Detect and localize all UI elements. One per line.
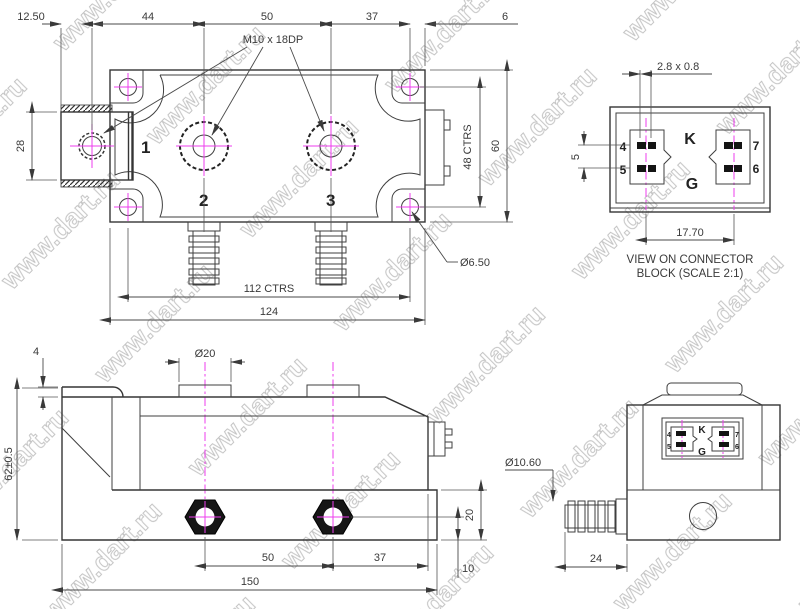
technical-drawing: www.dart.ru <box>0 0 800 609</box>
dim-pitch: 5 <box>570 154 582 160</box>
dim-48-ctrs: 48 CTRS <box>462 124 474 169</box>
pin-6-small: 6 <box>735 444 739 451</box>
cathode-label-small: K <box>698 425 706 436</box>
dim-dia-650: Ø6.50 <box>460 257 490 269</box>
dim-50-side: 50 <box>262 552 274 564</box>
dim-37-side: 37 <box>374 552 386 564</box>
watermark-layer <box>0 0 800 609</box>
dim-44: 44 <box>142 11 154 23</box>
dim-12-50: 12.50 <box>17 11 45 23</box>
pin-5-label: 5 <box>620 163 627 177</box>
dim-dia-1060: Ø10.60 <box>505 457 541 469</box>
pin-7-label: 7 <box>753 139 760 153</box>
dim-60: 60 <box>490 140 502 152</box>
pin-7-small: 7 <box>735 432 739 439</box>
pin-4-small: 4 <box>667 432 671 439</box>
dim-124: 124 <box>260 306 278 318</box>
cathode-label: K <box>684 131 696 148</box>
dim-10: 10 <box>462 563 474 575</box>
gate-label-small: G <box>698 447 706 458</box>
dim-28: 28 <box>15 140 27 152</box>
dim-pin-section: 2.8 x 0.8 <box>657 61 699 73</box>
hole-1-label: 1 <box>141 138 150 157</box>
gate-label: G <box>686 176 698 193</box>
dim-6: 6 <box>502 11 508 23</box>
thread-note-label: M10 x 18DP <box>243 34 304 46</box>
dim-dia20: Ø20 <box>195 348 216 360</box>
pin-4-label: 4 <box>620 140 627 154</box>
dim-37: 37 <box>366 11 378 23</box>
dim-spacing: 17.70 <box>676 227 704 239</box>
pin-5-small: 5 <box>667 444 671 451</box>
dim-4: 4 <box>33 346 39 358</box>
dim-112-ctrs: 112 CTRS <box>244 283 295 295</box>
pin-6-label: 6 <box>753 162 760 176</box>
dim-20: 20 <box>464 509 476 521</box>
dim-150: 150 <box>241 576 259 588</box>
dim-50: 50 <box>261 11 273 23</box>
drawing-page: www.dart.ru <box>0 0 800 609</box>
view-caption-line1: VIEW ON CONNECTOR <box>627 254 754 266</box>
dim-62: 62±0.5 <box>3 447 15 481</box>
view-caption-line2: BLOCK (SCALE 2:1) <box>637 268 744 280</box>
dim-24: 24 <box>590 553 602 565</box>
